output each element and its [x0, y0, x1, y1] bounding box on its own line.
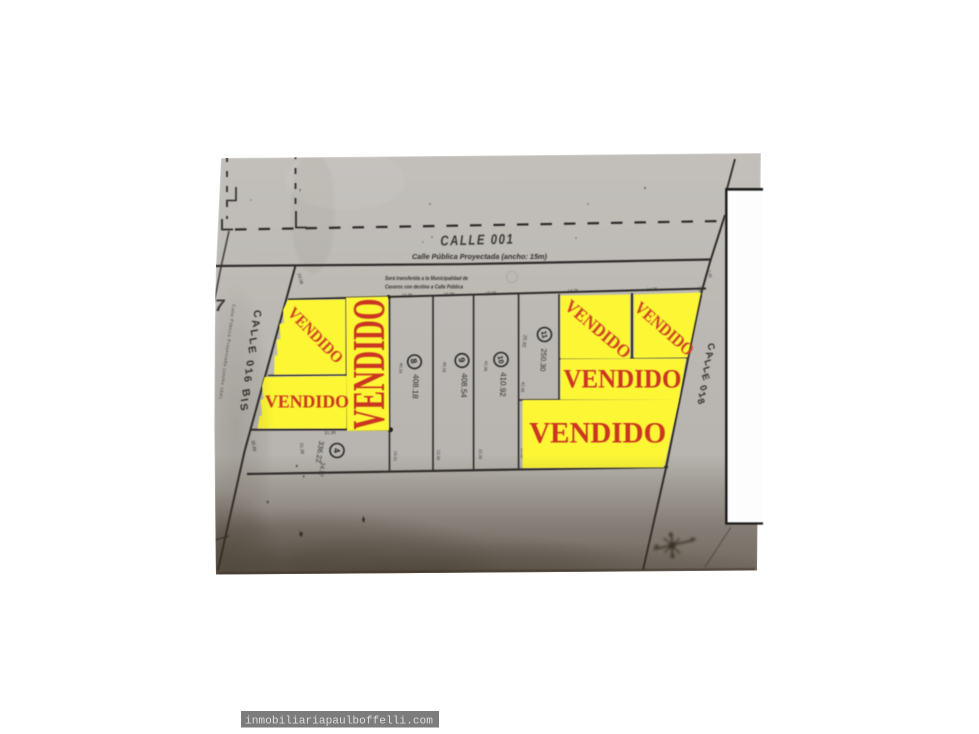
- svg-text:11: 11: [539, 330, 549, 339]
- svg-text:10.39: 10.39: [486, 290, 497, 296]
- svg-text:408.18: 408.18: [411, 374, 421, 399]
- svg-text:Será transferida a la Municipa: Será transferida a la Municipalidad de: [385, 276, 468, 282]
- svg-text:41.06: 41.06: [520, 382, 526, 393]
- svg-text:250.30: 250.30: [538, 348, 548, 371]
- svg-text:14.28: 14.28: [647, 286, 658, 291]
- svg-text:Caseros con destino a Calle Pú: Caseros con destino a Calle Pública: [385, 285, 463, 291]
- svg-text:inmobiliariapaulboffelli.com: inmobiliariapaulboffelli.com: [245, 716, 433, 728]
- svg-text:410.92: 410.92: [498, 372, 508, 397]
- svg-text:VENDIDO: VENDIDO: [265, 392, 349, 412]
- svg-text:40.29: 40.29: [442, 362, 448, 373]
- svg-text:CALLE 001: CALLE 001: [440, 231, 514, 249]
- svg-text:VENDIDO: VENDIDO: [563, 364, 681, 393]
- svg-text:VENDIDO: VENDIDO: [343, 299, 394, 430]
- svg-text:10: 10: [496, 355, 506, 364]
- svg-text:408.54: 408.54: [459, 373, 469, 398]
- svg-text:31.38: 31.38: [299, 443, 305, 455]
- svg-text:40.29: 40.29: [398, 363, 404, 374]
- svg-text:10.39: 10.39: [444, 291, 455, 297]
- svg-text:VENDIDO: VENDIDO: [529, 417, 666, 450]
- svg-text:Calle Pública Proyectada (anch: Calle Pública Proyectada (ancho: 15m): [412, 252, 548, 261]
- svg-text:41.06: 41.06: [483, 361, 489, 372]
- svg-text:31.38: 31.38: [324, 430, 336, 435]
- svg-text:14.28: 14.28: [568, 288, 579, 293]
- svg-text:10.39: 10.39: [402, 292, 413, 298]
